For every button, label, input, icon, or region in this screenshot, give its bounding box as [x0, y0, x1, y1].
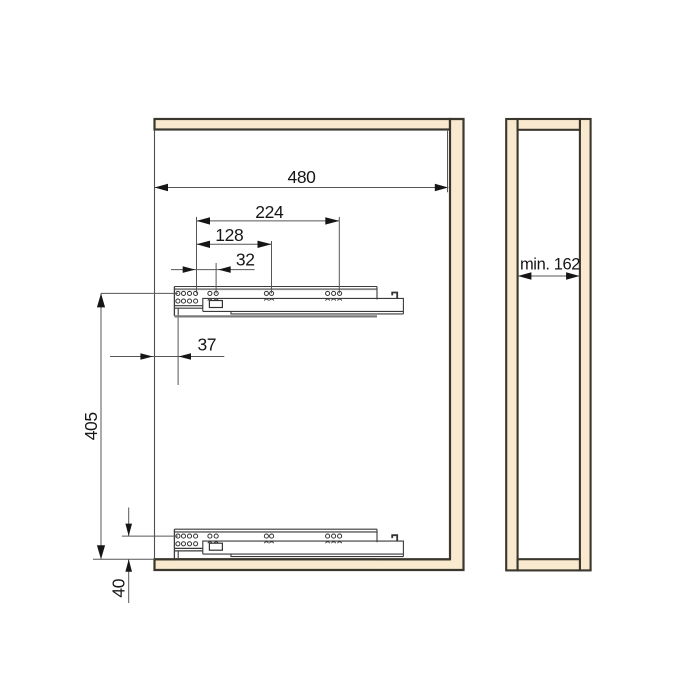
- svg-text:min. 162: min. 162: [520, 256, 580, 274]
- svg-text:37: 37: [197, 335, 216, 355]
- svg-text:32: 32: [236, 249, 255, 269]
- svg-text:40: 40: [109, 578, 129, 597]
- svg-text:480: 480: [288, 167, 317, 187]
- svg-text:405: 405: [81, 412, 101, 440]
- svg-text:224: 224: [255, 202, 284, 222]
- svg-text:128: 128: [215, 225, 243, 245]
